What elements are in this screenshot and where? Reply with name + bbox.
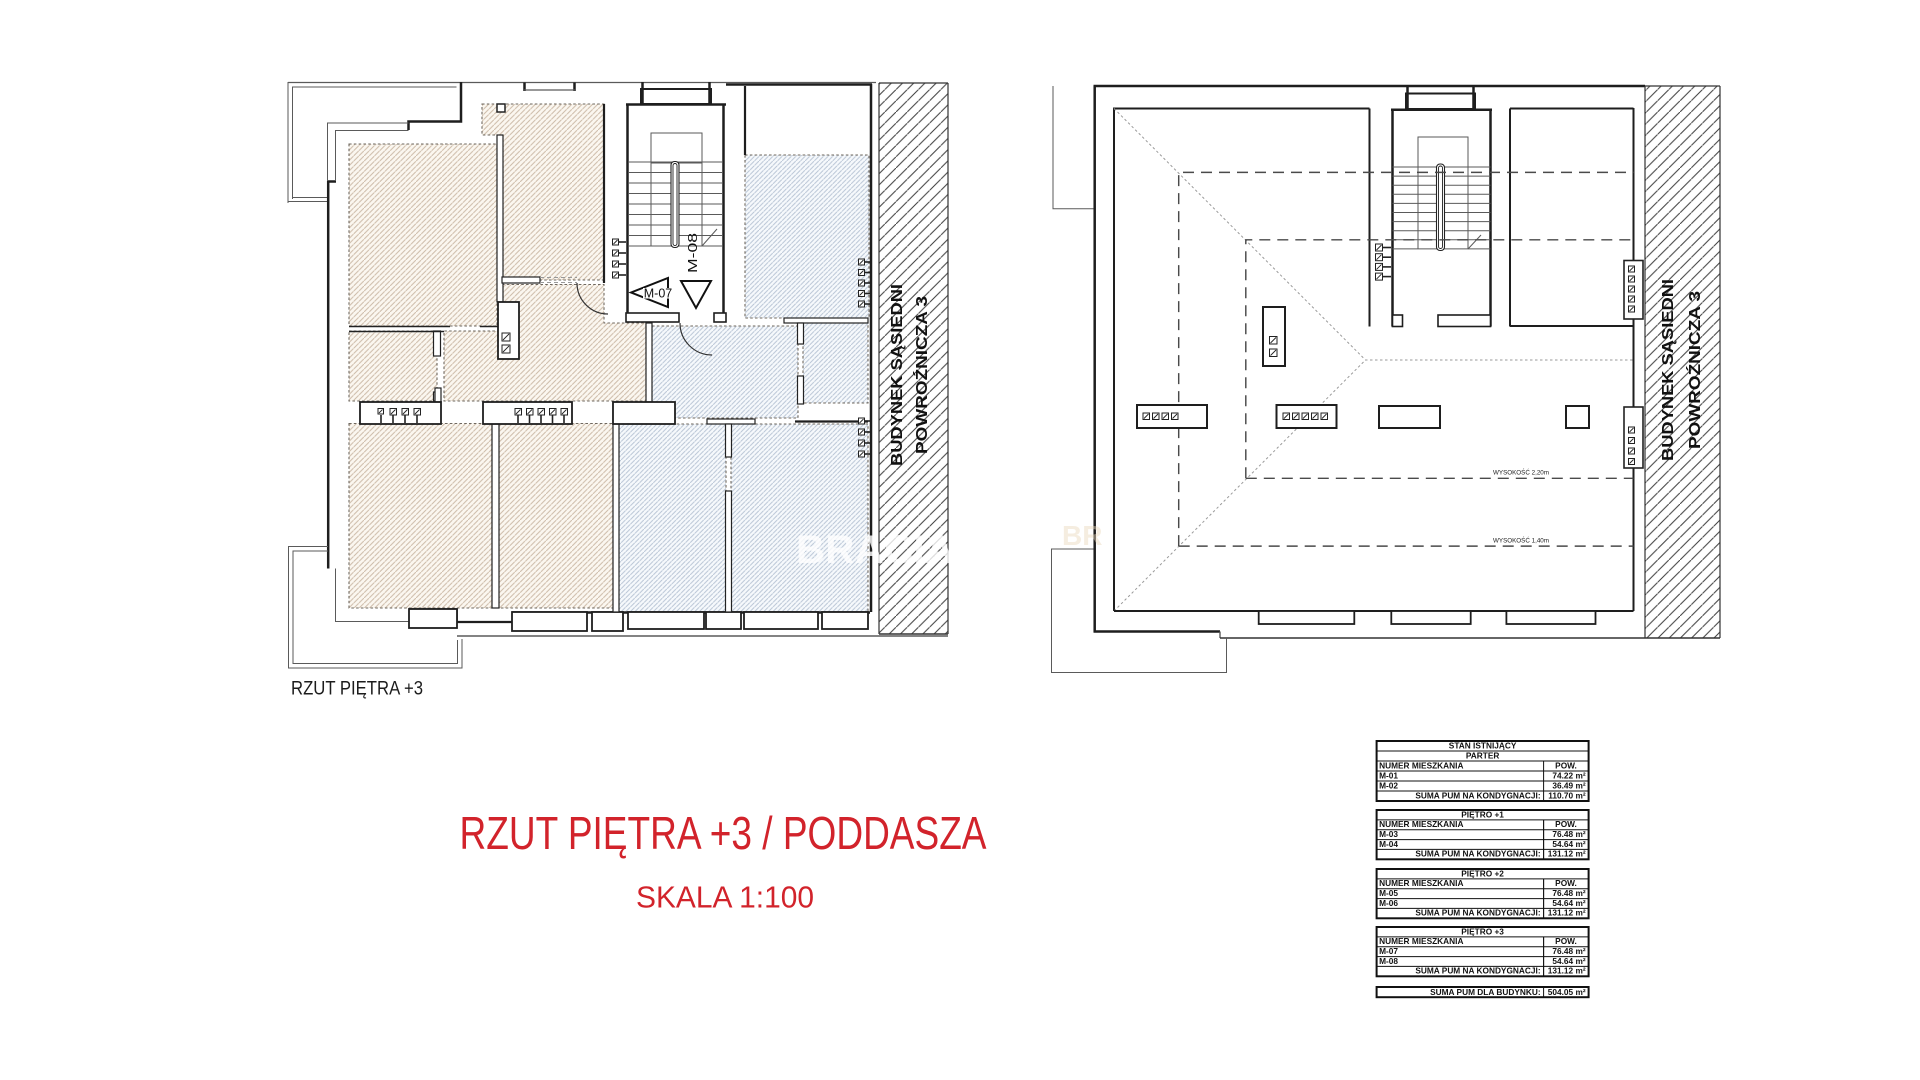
svg-text:NUMER MIESZKANIA: NUMER MIESZKANIA (1379, 936, 1463, 946)
svg-text:NUMER MIESZKANIA: NUMER MIESZKANIA (1379, 760, 1463, 770)
svg-text:SKALA 1:100: SKALA 1:100 (636, 880, 814, 915)
svg-text:M-04: M-04 (1379, 839, 1398, 849)
svg-text:SUMA PUM NA KONDYGNACJI:: SUMA PUM NA KONDYGNACJI: (1415, 849, 1540, 859)
svg-text:M-08: M-08 (685, 233, 700, 273)
svg-text:M-07: M-07 (1379, 946, 1398, 956)
svg-text:POW.: POW. (1555, 819, 1577, 829)
svg-text:76.48 m²: 76.48 m² (1552, 888, 1585, 898)
svg-text:PIĘTRO +1: PIĘTRO +1 (1461, 809, 1504, 819)
svg-text:M-08: M-08 (1379, 956, 1398, 966)
svg-text:M-05: M-05 (1379, 888, 1398, 898)
svg-text:NUMER MIESZKANIA: NUMER MIESZKANIA (1379, 878, 1463, 888)
svg-text:BUDYNEK SĄSIEDNI: BUDYNEK SĄSIEDNI (1660, 279, 1677, 461)
svg-text:M-03: M-03 (1379, 829, 1398, 839)
svg-text:54.64 m²: 54.64 m² (1552, 956, 1585, 966)
svg-text:RZUT PIĘTRA +3: RZUT PIĘTRA +3 (291, 678, 423, 700)
svg-text:76.48 m²: 76.48 m² (1552, 946, 1585, 956)
svg-text:131.12 m²: 131.12 m² (1548, 908, 1586, 918)
svg-text:M-06: M-06 (1379, 898, 1398, 908)
svg-text:WYSOKOŚĆ 2,20m: WYSOKOŚĆ 2,20m (1493, 468, 1549, 477)
svg-text:BR: BR (1062, 520, 1102, 551)
svg-text:POW.: POW. (1555, 760, 1577, 770)
svg-text:SUMA PUM DLA BUDYNKU:: SUMA PUM DLA BUDYNKU: (1430, 987, 1540, 997)
svg-text:36.49 m²: 36.49 m² (1552, 780, 1585, 790)
svg-text:BRACIA: BRACIA (796, 528, 955, 572)
svg-text:PIĘTRO +3: PIĘTRO +3 (1461, 926, 1504, 936)
svg-text:PIĘTRO +2: PIĘTRO +2 (1461, 868, 1504, 878)
svg-text:STAN ISTNIJĄCY: STAN ISTNIJĄCY (1449, 740, 1517, 750)
svg-text:131.12 m²: 131.12 m² (1548, 849, 1586, 859)
svg-text:NUMER MIESZKANIA: NUMER MIESZKANIA (1379, 819, 1463, 829)
svg-text:WYSOKOŚĆ 1,40m: WYSOKOŚĆ 1,40m (1493, 536, 1549, 545)
svg-text:76.48 m²: 76.48 m² (1552, 829, 1585, 839)
svg-text:M-07: M-07 (644, 287, 673, 301)
svg-text:M-02: M-02 (1379, 780, 1398, 790)
svg-text:SUMA PUM NA KONDYGNACJI:: SUMA PUM NA KONDYGNACJI: (1415, 790, 1540, 800)
svg-text:POWROŹNICZA 3: POWROŹNICZA 3 (912, 296, 931, 454)
svg-text:POWROŹNICZA 3: POWROŹNICZA 3 (1685, 291, 1704, 449)
svg-text:BUDYNEK SĄSIEDNI: BUDYNEK SĄSIEDNI (889, 284, 906, 466)
svg-text:74.22 m²: 74.22 m² (1552, 770, 1585, 780)
svg-text:SUMA PUM NA KONDYGNACJI:: SUMA PUM NA KONDYGNACJI: (1415, 966, 1540, 976)
svg-text:54.64 m²: 54.64 m² (1552, 839, 1585, 849)
svg-text:504.05 m²: 504.05 m² (1548, 987, 1586, 997)
svg-text:POW.: POW. (1555, 936, 1577, 946)
svg-text:SUMA PUM NA KONDYGNACJI:: SUMA PUM NA KONDYGNACJI: (1415, 908, 1540, 918)
svg-text:M-01: M-01 (1379, 770, 1398, 780)
svg-text:PARTER: PARTER (1466, 750, 1500, 760)
svg-text:54.64 m²: 54.64 m² (1552, 898, 1585, 908)
svg-text:POW.: POW. (1555, 878, 1577, 888)
svg-text:RZUT PIĘTRA +3 / PODDASZA: RZUT PIĘTRA +3 / PODDASZA (460, 807, 987, 859)
svg-text:110.70 m²: 110.70 m² (1548, 790, 1586, 800)
svg-text:131.12 m²: 131.12 m² (1548, 966, 1586, 976)
